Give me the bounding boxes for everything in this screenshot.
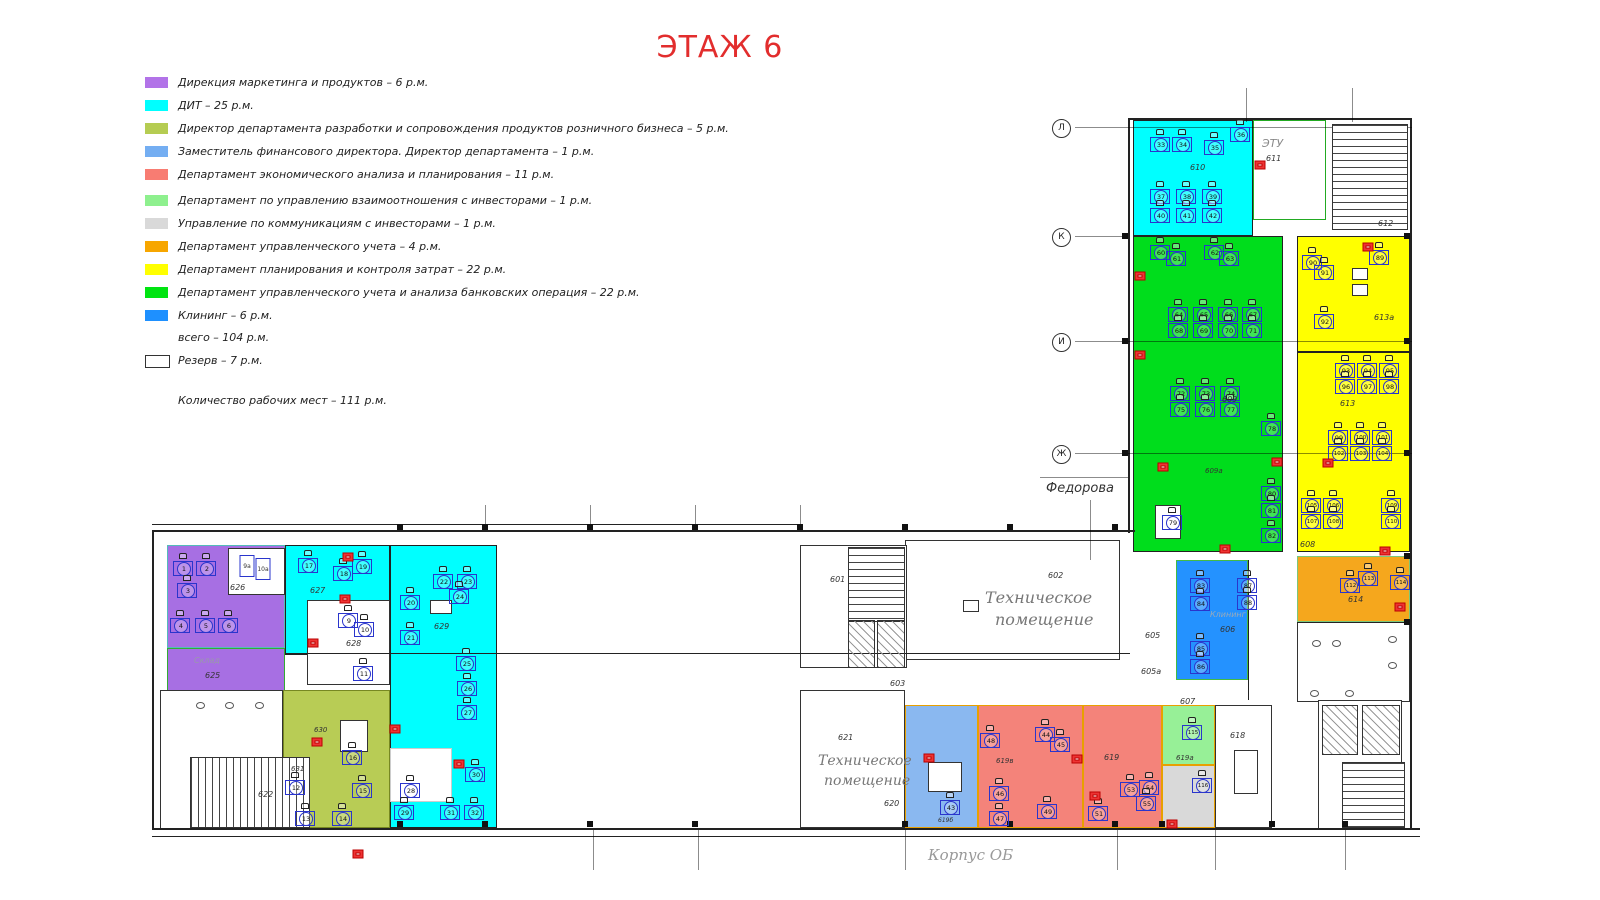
wc-fixture-icon [1388, 662, 1397, 669]
chair-icon [946, 792, 954, 798]
grid-line [1215, 830, 1216, 870]
workstation-number: 6 [222, 619, 236, 633]
workstation-number: 108 [1327, 515, 1341, 529]
chair-icon [1198, 770, 1206, 776]
chair-icon [1248, 315, 1256, 321]
workstation-number: 26 [461, 682, 475, 696]
fire-equipment-icon [1363, 243, 1374, 252]
workstation-number: 91 [1318, 266, 1332, 280]
structural-column [482, 524, 488, 530]
legend-item-label: Клининг – 6 р.м. [178, 309, 273, 322]
workstation-number: 69 [1197, 324, 1211, 338]
chair-icon [1174, 299, 1182, 305]
plan-label: Склад [194, 657, 220, 665]
chair-icon [463, 673, 471, 679]
structural-column [1112, 524, 1118, 530]
plan-label: 620 [884, 800, 899, 808]
plan-label: 612 [1378, 220, 1393, 228]
chair-icon [1346, 570, 1354, 576]
chair-icon [1396, 567, 1404, 573]
fire-equipment-icon [1090, 792, 1101, 801]
structural-column [397, 524, 403, 530]
legend-item: Департамент экономического анализа и пла… [145, 168, 1045, 182]
wall [1297, 622, 1410, 623]
workstation-number: 84 [1194, 597, 1208, 611]
grid-line [1246, 88, 1247, 122]
workstation-number: 30 [469, 768, 483, 782]
workstation-number: 46 [993, 787, 1007, 801]
chair-icon [1056, 729, 1064, 735]
workstation-number: 27 [461, 706, 475, 720]
workstation-number: 107 [1305, 515, 1319, 529]
chair-icon [406, 775, 414, 781]
meeting-table [1234, 750, 1258, 794]
workstation-number: 28 [404, 784, 418, 798]
chair-icon [202, 553, 210, 559]
grid-axis-marker: Ж [1052, 445, 1071, 464]
workstation-number: 51 [1092, 807, 1106, 821]
chair-icon [995, 803, 1003, 809]
fire-equipment-icon [1158, 463, 1169, 472]
fire-equipment-icon [1255, 161, 1266, 170]
plan-label: помещение [995, 612, 1093, 628]
fire-equipment-icon [1135, 272, 1146, 281]
chair-icon [1334, 438, 1342, 444]
chair-icon [1196, 588, 1204, 594]
chair-icon [1208, 200, 1216, 206]
plan-label: 619а [1176, 755, 1194, 762]
chair-icon [201, 610, 209, 616]
grid-line [1117, 830, 1118, 870]
fire-equipment-icon [353, 850, 364, 859]
grid-line [593, 830, 594, 870]
fire-equipment-icon [1135, 351, 1146, 360]
plan-label: 602 [1048, 572, 1063, 580]
fire-equipment-icon [1395, 603, 1406, 612]
room-619v [978, 705, 1083, 828]
chair-icon [1168, 507, 1176, 513]
structural-column [1269, 821, 1275, 827]
fire-equipment-icon [308, 639, 319, 648]
chair-icon [1196, 651, 1204, 657]
chair-icon [1267, 478, 1275, 484]
plan-label: 621 [838, 734, 853, 742]
chair-icon [224, 610, 232, 616]
workstation-number: 42 [1206, 209, 1220, 223]
wc-fixture-icon [196, 702, 205, 709]
workstation-number: 40 [1154, 209, 1168, 223]
chair-icon [1142, 788, 1150, 794]
reserve-workstation: 9а [240, 555, 255, 577]
chair-icon [1176, 378, 1184, 384]
structural-column [1122, 233, 1128, 239]
elevator-shaft [848, 620, 875, 668]
plan-label: 618 [1230, 732, 1245, 740]
legend-swatch [145, 241, 168, 252]
plan-label: 605а [1141, 668, 1161, 676]
workstation-number: 21 [404, 631, 418, 645]
workstation-number: 19 [356, 560, 370, 574]
elevator-shaft [1362, 705, 1400, 755]
structural-column [1404, 553, 1410, 559]
chair-icon [1243, 587, 1251, 593]
chair-icon [358, 775, 366, 781]
fire-equipment-icon [1272, 458, 1283, 467]
workstation-number: 68 [1172, 324, 1186, 338]
legend-swatch [145, 146, 168, 157]
chair-icon [471, 759, 479, 765]
plan-label: 601 [830, 576, 845, 584]
legend-item: Департамент планирования и контроля затр… [145, 263, 1045, 277]
fire-equipment-icon [1167, 820, 1178, 829]
legend-item: Департамент по управлению взаимоотношени… [145, 194, 1045, 208]
plan-label: 611 [1266, 155, 1281, 163]
page-title: ЭТАЖ 6 [640, 30, 800, 65]
workstation-number: 113 [1362, 572, 1376, 586]
chair-icon [179, 553, 187, 559]
workstation-number: 23 [461, 575, 475, 589]
chair-icon [1308, 247, 1316, 253]
plan-label: 603 [890, 680, 905, 688]
plan-label: 609а [1205, 468, 1223, 475]
chair-icon [338, 803, 346, 809]
legend-item: всего – 104 р.м. [145, 331, 1045, 345]
chair-icon [1043, 796, 1051, 802]
workstation-number: 47 [993, 812, 1007, 826]
workstation-number: 112 [1344, 579, 1358, 593]
grid-axis-marker: К [1052, 228, 1071, 247]
structural-column [1342, 821, 1348, 827]
chair-icon [406, 587, 414, 593]
workstation-number: 98 [1383, 380, 1397, 394]
legend-item-label: Департамент экономического анализа и пла… [178, 168, 554, 181]
fire-equipment-icon [312, 738, 323, 747]
workstation-number: 45 [1054, 738, 1068, 752]
plan-label: Техническое [985, 590, 1092, 606]
workstation-number: 11 [357, 667, 371, 681]
grid-line [1345, 830, 1346, 870]
plan-label: 607 [1180, 698, 1195, 706]
workstation-number: 4 [174, 619, 188, 633]
workstation-number: 97 [1361, 380, 1375, 394]
legend-item-label: Управление по коммуникациям с инвесторам… [178, 217, 496, 230]
wall [1128, 118, 1412, 120]
chair-icon [1156, 200, 1164, 206]
chair-icon [1156, 237, 1164, 243]
chair-icon [400, 797, 408, 803]
fire-equipment-icon [1220, 545, 1231, 554]
legend-item-label: всего – 104 р.м. [178, 331, 269, 344]
chair-icon [1363, 355, 1371, 361]
plan-label: 609 [1222, 396, 1237, 404]
workstation-number: 92 [1318, 315, 1332, 329]
workstation-number: 70 [1222, 324, 1236, 338]
workstation-number: 41 [1180, 209, 1194, 223]
workstation-number: 89 [1373, 251, 1387, 265]
legend-swatch [145, 287, 168, 298]
chair-icon [1182, 181, 1190, 187]
room-611 [1253, 120, 1326, 220]
chair-icon [1267, 495, 1275, 501]
chair-icon [1329, 490, 1337, 496]
legend-swatch [145, 195, 168, 206]
grid-line [1352, 88, 1353, 122]
fire-equipment-icon [454, 760, 465, 769]
legend-swatch [145, 169, 168, 180]
workstation-number: 18 [337, 567, 351, 581]
chair-icon [1210, 132, 1218, 138]
chair-icon [1364, 563, 1372, 569]
legend-note-label: Количество рабочих мест – 111 р.м. [178, 394, 387, 407]
staircase [1342, 762, 1405, 828]
chair-icon [1267, 413, 1275, 419]
plan-label: 629 [434, 623, 449, 631]
chair-icon [1341, 371, 1349, 377]
structural-column [587, 821, 593, 827]
fire-equipment-icon [1072, 755, 1083, 764]
chair-icon [1356, 422, 1364, 428]
chair-icon [439, 566, 447, 572]
chair-icon [1329, 506, 1337, 512]
chair-icon [446, 797, 454, 803]
legend-item-label: Департамент управленческого учета – 4 р.… [178, 240, 441, 253]
chair-icon [1236, 119, 1244, 125]
workstation-number: 43 [944, 801, 958, 815]
workstation-number: 22 [437, 575, 451, 589]
structural-column [1404, 450, 1410, 456]
chair-icon [463, 566, 471, 572]
legend-swatch [145, 100, 168, 111]
chair-icon [1174, 315, 1182, 321]
plan-label: 614 [1348, 596, 1363, 604]
workstation-number: 76 [1199, 403, 1213, 417]
structural-column [1404, 338, 1410, 344]
legend-swatch [145, 77, 168, 88]
workstation-number: 86 [1194, 660, 1208, 674]
plan-label: Клининг [1210, 611, 1246, 619]
workstation-number: 1 [177, 562, 191, 576]
legend-item: Департамент управленческого учета – 4 р.… [145, 240, 1045, 254]
chair-icon [1178, 129, 1186, 135]
grid-axis-marker: И [1052, 333, 1071, 352]
workstation-number: 61 [1170, 252, 1184, 266]
chair-icon [1356, 438, 1364, 444]
workstation-number: 96 [1339, 380, 1353, 394]
grid-line [1075, 236, 1128, 237]
chair-icon [1208, 181, 1216, 187]
plan-label: 605 [1145, 632, 1160, 640]
workstation-number: 14 [336, 812, 350, 826]
wall [1410, 118, 1412, 830]
fire-equipment-icon [1323, 459, 1334, 468]
legend-item: Резерв – 7 р.м. [145, 354, 1045, 368]
structural-column [397, 821, 403, 827]
chair-icon [1145, 772, 1153, 778]
chair-icon [1375, 242, 1383, 248]
plan-label: 622 [258, 791, 273, 799]
structural-column [1404, 619, 1410, 625]
wc-fixture-icon [1310, 690, 1319, 697]
plan-label: Техническое [818, 754, 912, 768]
workstation-number: 20 [404, 596, 418, 610]
workstation-number: 12 [289, 781, 303, 795]
meeting-table [1352, 268, 1368, 280]
chair-icon [1378, 422, 1386, 428]
elevator-shaft [877, 620, 905, 668]
reserve-workstation: 10а [256, 558, 271, 580]
structural-column [482, 821, 488, 827]
chair-icon [1243, 570, 1251, 576]
workstation-number: 55 [1140, 797, 1154, 811]
chair-icon [470, 797, 478, 803]
legend-swatch [145, 218, 168, 229]
structural-column [692, 524, 698, 530]
workstation-number: 75 [1174, 403, 1188, 417]
legend-item: Департамент управленческого учета и анал… [145, 286, 1045, 300]
chair-icon [1387, 490, 1395, 496]
plan-label: 619б [938, 818, 953, 824]
elevator-shaft [1322, 705, 1358, 755]
chair-icon [1156, 129, 1164, 135]
grid-line [1040, 477, 1128, 478]
workstation-number: 88 [1241, 596, 1255, 610]
workstation-number: 25 [460, 657, 474, 671]
workstation-number: 33 [1154, 138, 1168, 152]
plan-label: 631 [291, 766, 304, 773]
workstation-number: 31 [444, 806, 458, 820]
chair-icon [176, 610, 184, 616]
grid-axis-marker: Л [1052, 119, 1071, 138]
legend-item-label: Заместитель финансового директора. Дирек… [178, 145, 594, 158]
workstation-number: 3 [181, 584, 195, 598]
structural-column [1404, 233, 1410, 239]
fire-equipment-icon [340, 595, 351, 604]
workstation-number: 63 [1223, 252, 1237, 266]
meeting-table [928, 762, 962, 792]
plan-label: помещение [824, 774, 910, 788]
plan-label: 626 [230, 584, 245, 592]
chair-icon [1387, 506, 1395, 512]
workstation-number: 103 [1354, 447, 1368, 461]
wc-fixture-icon [1388, 636, 1397, 643]
chair-icon [1182, 200, 1190, 206]
chair-icon [462, 648, 470, 654]
structural-column [692, 821, 698, 827]
wall [152, 530, 1135, 532]
legend-item-label: ДИТ – 25 р.м. [178, 99, 254, 112]
chair-icon [1248, 299, 1256, 305]
chair-icon [1041, 719, 1049, 725]
workstation-number: 17 [302, 559, 316, 573]
workstation-number: 104 [1376, 447, 1390, 461]
wall [285, 653, 1130, 654]
workstation-number: 36 [1234, 128, 1248, 142]
structural-column [587, 524, 593, 530]
wall [152, 828, 1420, 830]
structural-column [1122, 338, 1128, 344]
plan-label: 619в [996, 758, 1014, 765]
wall [1128, 118, 1130, 533]
workstation-number: 77 [1224, 403, 1238, 417]
chair-icon [301, 803, 309, 809]
workstation-number: 79 [1166, 516, 1180, 530]
chair-icon [1224, 299, 1232, 305]
workstation-number: 48 [984, 734, 998, 748]
plan-label: 628 [346, 640, 361, 648]
workstation-number: 5 [199, 619, 213, 633]
legend-item-label: Дирекция маркетинга и продуктов – 6 р.м. [178, 76, 428, 89]
chair-icon [1378, 438, 1386, 444]
chair-icon [1199, 299, 1207, 305]
chair-icon [360, 614, 368, 620]
legend-swatch [145, 264, 168, 275]
workstation-number: 29 [398, 806, 412, 820]
workstation-number: 34 [1176, 138, 1190, 152]
plan-label: 627 [310, 587, 325, 595]
plan-label: Корпус ОБ [928, 848, 1013, 863]
structural-column [1122, 450, 1128, 456]
chair-icon [1320, 306, 1328, 312]
chair-icon [348, 742, 356, 748]
chair-icon [183, 575, 191, 581]
legend-item: ДИТ – 25 р.м. [145, 99, 1045, 113]
legend-item-label: Департамент по управлению взаимоотношени… [178, 194, 592, 207]
wc-fixture-icon [225, 702, 234, 709]
chair-icon [463, 697, 471, 703]
staircase [848, 547, 905, 622]
fire-equipment-icon [1380, 547, 1391, 556]
legend-item-label: Департамент планирования и контроля затр… [178, 263, 506, 276]
chair-icon [304, 550, 312, 556]
chair-icon [1341, 355, 1349, 361]
chair-icon [1156, 181, 1164, 187]
workstation-number: 81 [1265, 504, 1279, 518]
legend-item: Дирекция маркетинга и продуктов – 6 р.м. [145, 76, 1045, 90]
wc-fixture-icon [1332, 640, 1341, 647]
chair-icon [1320, 257, 1328, 263]
wc-fixture-icon [1312, 640, 1321, 647]
legend-item: Заместитель финансового директора. Дирек… [145, 145, 1045, 159]
chair-icon [1363, 371, 1371, 377]
chair-icon [1267, 520, 1275, 526]
chair-icon [1385, 355, 1393, 361]
plan-label: 610 [1190, 164, 1205, 172]
chair-icon [995, 778, 1003, 784]
legend-note: Количество рабочих мест – 111 р.м. [145, 394, 1045, 408]
chair-icon [406, 622, 414, 628]
staircase [1332, 124, 1408, 230]
plan-label: 625 [205, 672, 220, 680]
workstation-number: 32 [468, 806, 482, 820]
grid-line [905, 830, 906, 870]
workstation-number: 13 [299, 812, 313, 826]
chair-icon [1199, 315, 1207, 321]
chair-icon [1172, 243, 1180, 249]
chair-icon [358, 551, 366, 557]
chair-icon [455, 581, 463, 587]
legend-swatch [145, 123, 168, 134]
plan-label: 606 [1220, 626, 1235, 634]
fire-equipment-icon [343, 553, 354, 562]
chair-icon [1225, 243, 1233, 249]
grid-line [698, 830, 699, 870]
plan-label: 613 [1340, 400, 1355, 408]
plan-label: 613а [1374, 314, 1394, 322]
wall [152, 524, 802, 525]
workstation-number: 114 [1394, 576, 1408, 590]
structural-column [1007, 524, 1013, 530]
meeting-table [963, 600, 979, 612]
